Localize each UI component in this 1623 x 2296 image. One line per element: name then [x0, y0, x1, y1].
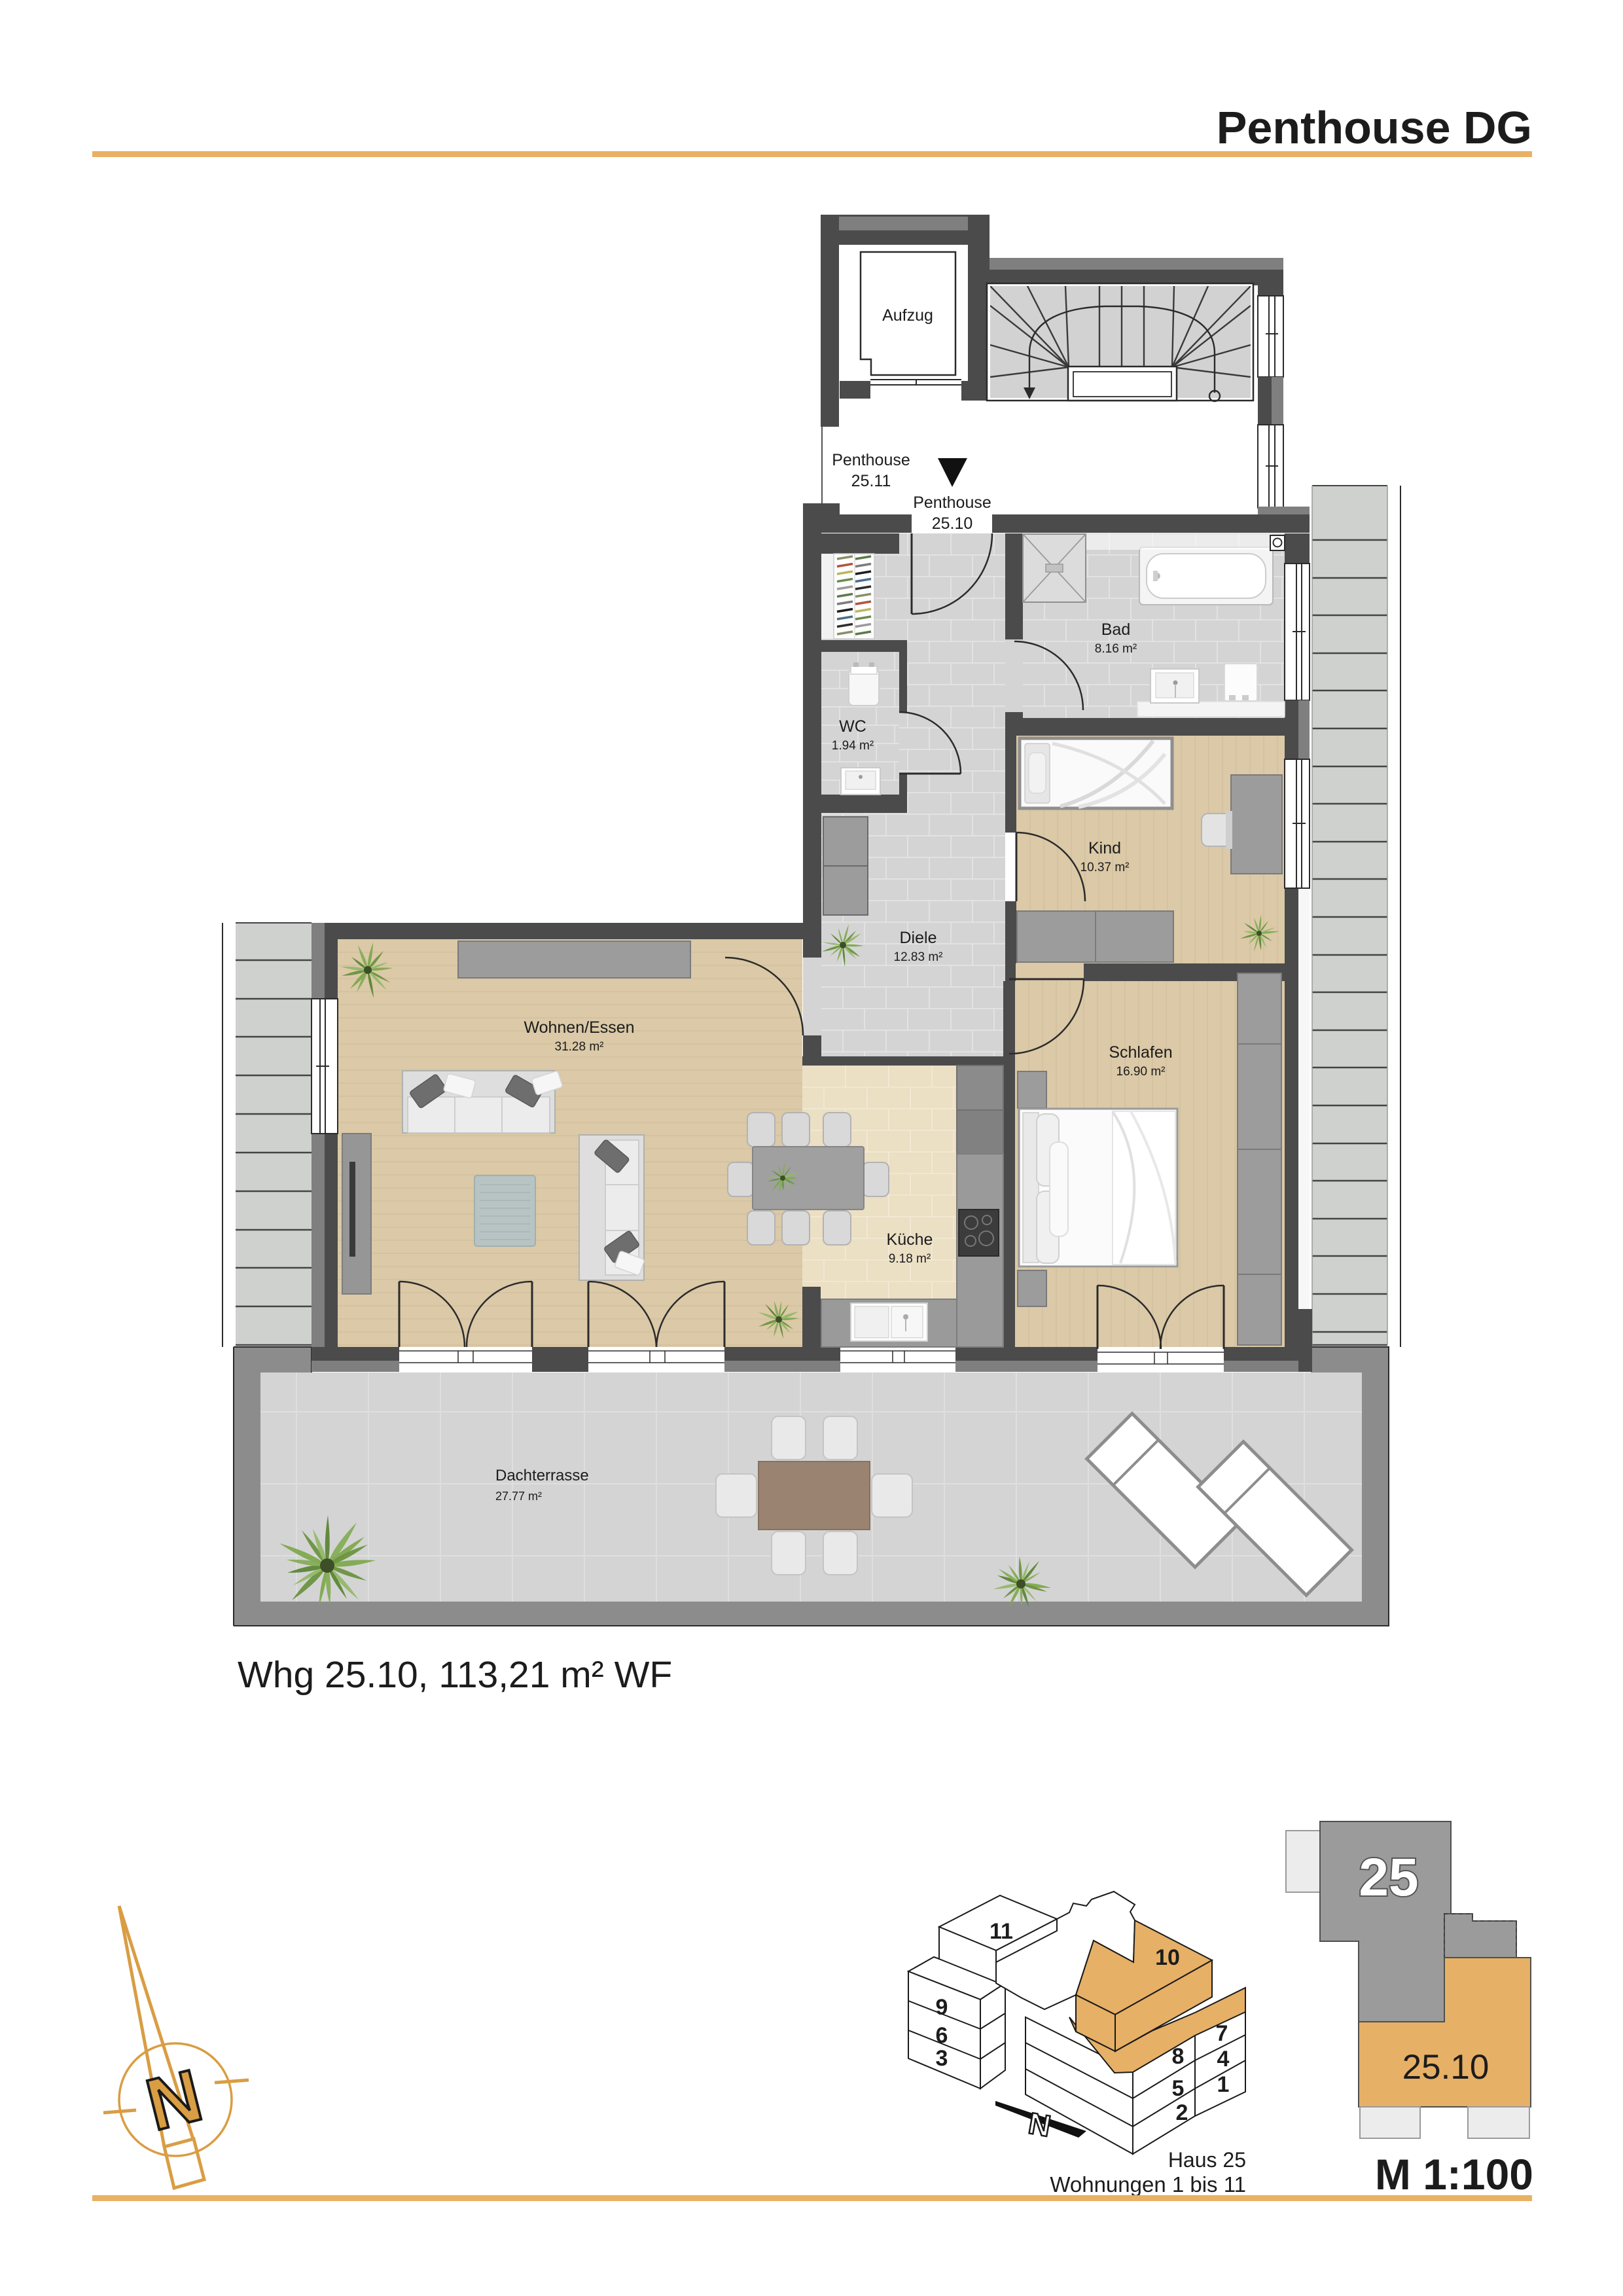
svg-text:4: 4 — [1217, 2047, 1230, 2072]
svg-text:2: 2 — [1176, 2100, 1188, 2125]
svg-text:Wohnungen 1 bis 11: Wohnungen 1 bis 11 — [1050, 2172, 1246, 2197]
svg-text:Kind: Kind — [1088, 839, 1121, 857]
svg-text:3: 3 — [936, 2046, 948, 2071]
svg-text:M 1:100: M 1:100 — [1375, 2150, 1533, 2198]
svg-text:Aufzug: Aufzug — [882, 306, 933, 325]
svg-text:5: 5 — [1172, 2076, 1185, 2101]
svg-text:Diele: Diele — [900, 929, 937, 947]
svg-text:Bad: Bad — [1101, 620, 1130, 639]
svg-text:31.28 m²: 31.28 m² — [555, 1040, 604, 1054]
svg-text:25.10: 25.10 — [932, 514, 973, 533]
svg-text:Küche: Küche — [887, 1230, 933, 1249]
svg-text:Penthouse: Penthouse — [913, 493, 991, 512]
svg-text:Whg 25.10, 113,21 m² WF: Whg 25.10, 113,21 m² WF — [238, 1654, 672, 1696]
svg-text:Schlafen: Schlafen — [1109, 1043, 1172, 1062]
svg-text:Penthouse DG: Penthouse DG — [1217, 102, 1532, 153]
svg-text:8.16 m²: 8.16 m² — [1095, 642, 1137, 656]
svg-text:1.94 m²: 1.94 m² — [832, 739, 874, 753]
svg-text:WC: WC — [839, 717, 866, 736]
svg-text:10: 10 — [1155, 1945, 1180, 1970]
svg-text:12.83 m²: 12.83 m² — [894, 950, 943, 964]
svg-text:Dachterrasse: Dachterrasse — [495, 1467, 589, 1484]
svg-text:Wohnen/Essen: Wohnen/Essen — [524, 1018, 634, 1037]
svg-text:Penthouse: Penthouse — [832, 451, 910, 469]
svg-text:10.37 m²: 10.37 m² — [1080, 861, 1130, 874]
svg-text:9: 9 — [936, 1995, 948, 2020]
svg-text:16.90 m²: 16.90 m² — [1116, 1065, 1166, 1079]
svg-text:Haus 25: Haus 25 — [1168, 2148, 1246, 2172]
svg-text:11: 11 — [990, 1919, 1013, 1944]
svg-text:25.11: 25.11 — [851, 472, 891, 490]
svg-text:27.77 m²: 27.77 m² — [495, 1490, 542, 1503]
svg-text:6: 6 — [936, 2023, 948, 2048]
svg-text:1: 1 — [1217, 2072, 1230, 2097]
svg-text:25: 25 — [1359, 1848, 1418, 1907]
svg-text:25.10: 25.10 — [1402, 2048, 1489, 2087]
svg-text:9.18 m²: 9.18 m² — [889, 1252, 931, 1266]
